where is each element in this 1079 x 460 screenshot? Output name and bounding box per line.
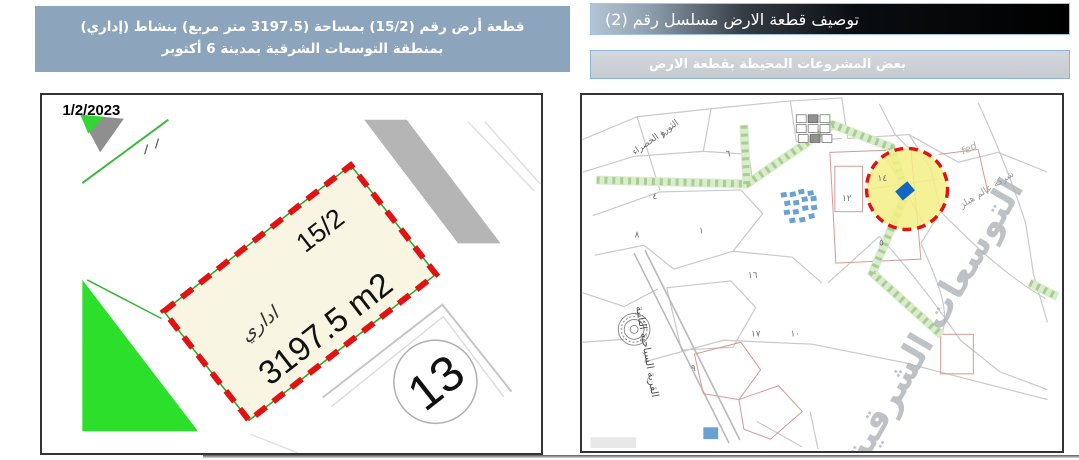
parcel-numeral: ١٢ (842, 194, 852, 204)
parcel-numeral: ٦ (726, 149, 731, 159)
district-label: الثورة الخضراء (631, 118, 681, 157)
plot-summary-text: قطعة أرض رقم (15/2) بمساحة (3197.5 متر م… (61, 17, 544, 60)
road-label: القرية السياحية الثانية (633, 305, 661, 398)
location-overview-map: التوسعات الشرقية القرية السياحية الثانية… (580, 93, 1064, 453)
plot-survey-map: 1/2/2023 (40, 93, 543, 455)
dense-parcel-grid (796, 115, 832, 143)
blue-building-cluster (780, 187, 820, 225)
parcel-numerals: ١٤ ١٢ ٥ ٧ ٦ ٨ ٤ ٩ ١٧ ١٦ ١٠ ١ (635, 132, 888, 374)
parcel-numeral: ١٤ (878, 174, 888, 184)
parcel-numeral: ٩ (691, 364, 696, 374)
slide-canvas: قطعة أرض رقم (15/2) بمساحة (3197.5 متر م… (0, 0, 1079, 460)
parcel-numeral: ٥ (879, 238, 884, 248)
surrounding-projects-bar: بعض المشروعات المحيطة بقطعة الارض (590, 50, 1070, 79)
hatched-area (591, 437, 636, 448)
right-panel-title-text: توصيف قطعة الارض مسلسل رقم (2) (605, 10, 859, 29)
script-note: fed (960, 140, 980, 157)
survey-tick-marks (145, 139, 159, 155)
parcel-numeral: ١٠ (791, 329, 801, 339)
map-marker-triangle (80, 115, 124, 153)
faint-road-lines (468, 122, 540, 191)
bottom-divider (203, 455, 1079, 458)
parcel-numeral: ١ (699, 226, 704, 236)
city-map-drawing: التوسعات الشرقية القرية السياحية الثانية… (582, 95, 1062, 451)
plot-summary-header: قطعة أرض رقم (15/2) بمساحة (3197.5 متر م… (35, 6, 570, 72)
parcel-numeral: ١٧ (751, 329, 761, 339)
parcel-numeral: ١٦ (748, 271, 758, 281)
surrounding-projects-text: بعض المشروعات المحيطة بقطعة الارض (649, 57, 906, 72)
parcel-numeral: ٧ (661, 132, 666, 142)
parcel-numeral: ٤ (652, 192, 657, 202)
right-panel-title-bar: توصيف قطعة الارض مسلسل رقم (2) (590, 3, 1070, 35)
plot-survey-drawing: 1/2/2023 (42, 95, 541, 453)
parcel-numeral: ٨ (635, 230, 640, 240)
small-blue-parcel (703, 427, 718, 439)
